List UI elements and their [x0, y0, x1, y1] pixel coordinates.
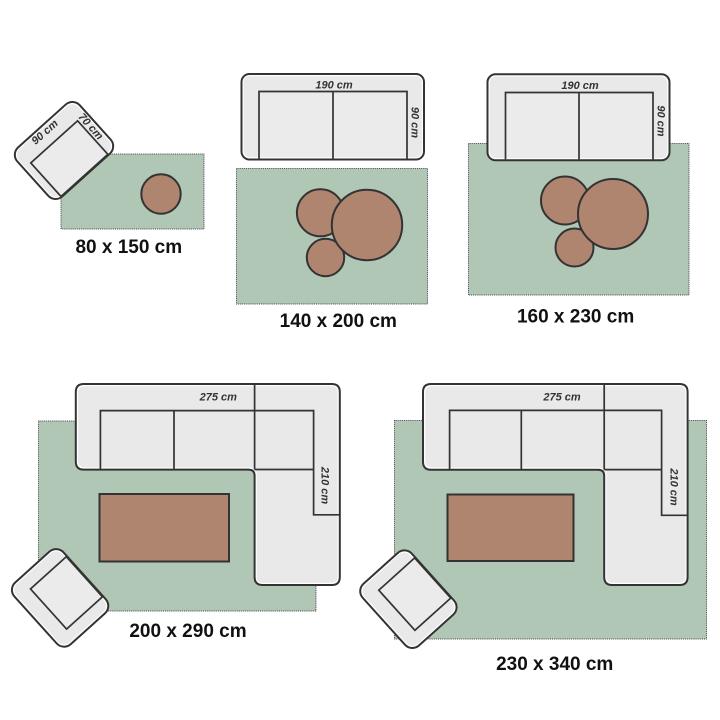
svg-text:275 cm: 275 cm: [542, 392, 581, 404]
svg-text:210 cm: 210 cm: [668, 467, 680, 506]
svg-text:200 x 290 cm: 200 x 290 cm: [129, 621, 246, 642]
svg-text:190 cm: 190 cm: [561, 80, 599, 92]
svg-text:230 x 340 cm: 230 x 340 cm: [496, 654, 613, 675]
svg-text:160 x 230 cm: 160 x 230 cm: [517, 307, 634, 328]
svg-text:90 cm: 90 cm: [655, 105, 667, 136]
svg-text:80 x 150 cm: 80 x 150 cm: [75, 237, 182, 258]
svg-text:140 x 200 cm: 140 x 200 cm: [280, 311, 397, 332]
svg-text:210 cm: 210 cm: [319, 466, 331, 505]
svg-text:190 cm: 190 cm: [315, 80, 353, 92]
svg-text:90 cm: 90 cm: [409, 107, 421, 138]
svg-text:275 cm: 275 cm: [199, 392, 238, 404]
